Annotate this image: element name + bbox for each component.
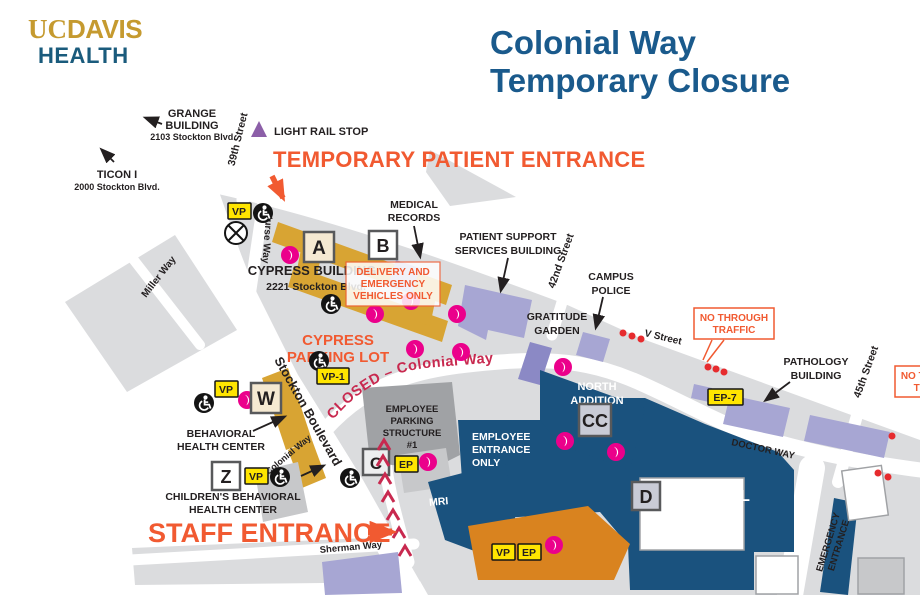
ep-badge-text: EP — [399, 459, 413, 471]
badge-b: B — [369, 231, 397, 259]
vp1-badge-text: VP-1 — [321, 371, 345, 383]
pathology-label-1: PATHOLOGY — [784, 356, 849, 368]
behavioral-label-1: BEHAVIORAL — [187, 428, 256, 440]
closure-dot — [889, 433, 896, 440]
ep-badge: EP — [395, 456, 418, 472]
no-through-traffic-2: TRAFFIC — [713, 325, 756, 336]
badge-a: A — [304, 232, 334, 262]
closure-dot — [620, 330, 627, 337]
ep-badge: EP — [518, 544, 541, 560]
north-addition-label-1: NORTH — [577, 381, 616, 393]
cypress-lot-label-2: PARKING LOT — [287, 349, 389, 366]
patient-support-label-2: SERVICES BUILDING — [455, 245, 562, 257]
closure-dot — [713, 366, 720, 373]
employee-entrance-label-1: EMPLOYEE — [472, 431, 530, 443]
hospital-label: HOSPITAL — [670, 488, 750, 505]
no-through-traffic-2: TRAFFIC — [914, 383, 920, 394]
vp-badge: VP — [492, 544, 515, 560]
no-through-traffic-1: NO THROUGH — [700, 313, 768, 324]
logo-health: HEALTH — [38, 45, 142, 67]
building-far-right-bottom — [858, 558, 904, 594]
medical-records-label-2: RECORDS — [388, 212, 441, 224]
delivery-note-1: DELIVERY AND — [356, 267, 430, 278]
badge-w: W — [251, 383, 281, 413]
vp-badge: VP — [215, 381, 238, 397]
phone-icon — [419, 453, 437, 471]
grange-label-2: BUILDING — [165, 120, 218, 132]
gratitude-garden-label-2: GARDEN — [534, 325, 580, 337]
phone-icon — [554, 358, 572, 376]
light-rail-stop-label: LIGHT RAIL STOP — [274, 126, 368, 138]
badge-c-letter: C — [370, 454, 382, 473]
delivery-note-2: EMERGENCY — [361, 279, 426, 290]
staff-entrance-label: STAFF ENTRANCE — [148, 518, 391, 548]
phone-icon — [281, 246, 299, 264]
vp-badge-text: VP — [219, 384, 233, 396]
wheelchair-icon — [270, 467, 290, 487]
badge-cc: CC — [579, 404, 611, 436]
ticon-arrow — [102, 150, 114, 162]
vp-badge: VP — [245, 468, 268, 484]
phone-icon — [545, 536, 563, 554]
phone-icon — [366, 305, 384, 323]
phone-icon — [452, 343, 470, 361]
badge-w-letter: W — [257, 389, 275, 410]
delivery-note-3: VEHICLES ONLY — [353, 291, 433, 302]
medical-records-label-1: MEDICAL — [390, 199, 438, 211]
vp-badge-text: VP — [249, 471, 263, 483]
employee-parking-label-1: EMPLOYEE — [386, 404, 439, 415]
wheelchair-icon — [340, 468, 360, 488]
closure-dot — [638, 336, 645, 343]
vp-badge-text: VP — [232, 206, 246, 218]
wheelchair-icon — [253, 203, 273, 223]
badge-d: D — [632, 482, 660, 510]
ucdavis-health-logo: UCDAVIS HEALTH — [28, 16, 142, 67]
ep-badge-text: EP — [522, 547, 536, 559]
campus-police-label-2: POLICE — [591, 285, 630, 297]
campus-police-label-1: CAMPUS — [588, 271, 634, 283]
badge-z: Z — [212, 462, 240, 490]
badge-d-letter: D — [640, 487, 653, 507]
badge-z-letter: Z — [221, 467, 232, 487]
title-line-2: Temporary Closure — [490, 62, 910, 100]
closure-dot — [721, 369, 728, 376]
no-through-traffic-callout-clipped: NO THROUGH TRAFFIC — [895, 366, 920, 397]
badge-cc-letter: CC — [582, 411, 608, 431]
block-miller-way — [65, 235, 237, 392]
title-line-1: Colonial Way — [490, 24, 910, 62]
employee-parking-label-3: STRUCTURE — [383, 428, 442, 439]
gratitude-garden-label-1: GRATITUDE — [527, 311, 587, 323]
closure-dot — [705, 364, 712, 371]
ep7-badge-text: EP-7 — [713, 392, 737, 404]
employee-parking-label-4: #1 — [407, 440, 418, 451]
phone-icon — [406, 340, 424, 358]
map-poster: UCDAVIS HEALTH Colonial Way Temporary Cl… — [0, 0, 920, 595]
phone-icon — [556, 432, 574, 450]
temporary-patient-entrance-label: TEMPORARY PATIENT ENTRANCE — [273, 147, 645, 172]
page-title: Colonial Way Temporary Closure — [490, 24, 910, 100]
mri-label: MRI — [429, 495, 449, 509]
childrens-label-2: HEALTH CENTER — [189, 504, 277, 516]
vp1-badge: VP-1 — [317, 368, 349, 384]
closure-dot — [629, 333, 636, 340]
phone-icon — [448, 305, 466, 323]
no-through-traffic-1: NO THROUGH — [901, 371, 920, 382]
vp-badge: VP — [228, 203, 251, 219]
childrens-label-1: CHILDREN'S BEHAVIORAL — [165, 491, 301, 503]
closure-dot — [875, 470, 882, 477]
logo-uc: UC — [28, 14, 67, 44]
employee-parking-label-2: PARKING — [390, 416, 433, 427]
delivery-callout: DELIVERY AND EMERGENCY VEHICLES ONLY — [346, 262, 440, 306]
crossed-circle-icon — [225, 222, 247, 244]
vp-badge-text: VP — [496, 547, 510, 559]
grange-address: 2103 Stockton Blvd. — [150, 132, 236, 142]
wheelchair-icon — [321, 294, 341, 314]
parking-strips — [756, 556, 798, 594]
badge-b-letter: B — [377, 236, 390, 256]
grange-label-1: GRANGE — [168, 108, 216, 120]
pathology-label-2: BUILDING — [791, 370, 842, 382]
employee-entrance-label-3: ONLY — [472, 457, 500, 469]
ticon-address: 2000 Stockton Blvd. — [74, 182, 160, 192]
behavioral-label-2: HEALTH CENTER — [177, 441, 265, 453]
closure-dot — [885, 474, 892, 481]
ticon-label: TICON I — [97, 169, 137, 181]
employee-entrance-label-2: ENTRANCE — [472, 444, 530, 456]
ep7-badge: EP-7 — [708, 389, 743, 405]
phone-icon — [607, 443, 625, 461]
wheelchair-icon — [194, 393, 214, 413]
badge-a-letter: A — [312, 238, 326, 259]
logo-davis: DAVIS — [67, 14, 142, 44]
patient-support-label-1: PATIENT SUPPORT — [459, 231, 557, 243]
cypress-lot-label-1: CYPRESS — [302, 332, 374, 349]
